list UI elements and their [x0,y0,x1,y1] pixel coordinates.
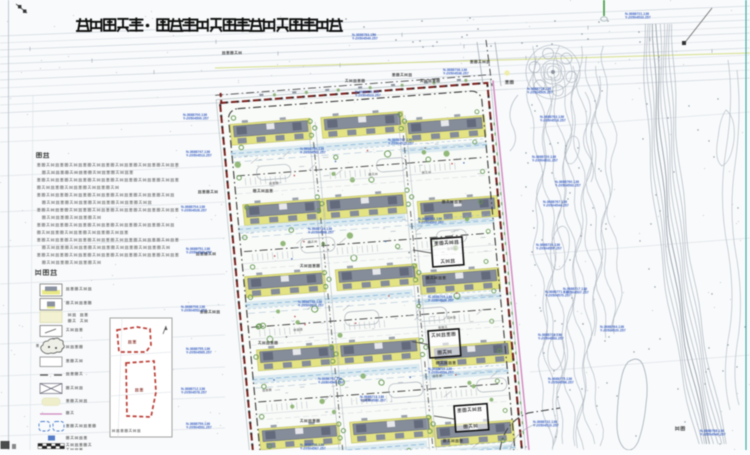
svg-text:Y-20504557.257: Y-20504557.257 [536,247,562,251]
svg-text:Y-20504518.257: Y-20504518.257 [540,119,566,123]
svg-text:Y-20504578.257: Y-20504578.257 [181,391,207,395]
svg-text:Y-20504565.257: Y-20504565.257 [186,351,212,355]
svg-text:Y-20504533.257: Y-20504533.257 [625,16,651,20]
svg-text:Y-20504593.257: Y-20504593.257 [555,184,581,188]
svg-text:Y-20504552.257: Y-20504552.257 [181,309,207,313]
svg-text:Y-20504502.257: Y-20504502.257 [418,221,444,225]
svg-text:Y-20504526.257: Y-20504526.257 [181,209,207,213]
svg-text:Y-20504591.257: Y-20504591.257 [186,426,212,430]
svg-text:Y-20504546.257: Y-20504546.257 [700,433,726,437]
svg-text:Y-20504500.257: Y-20504500.257 [183,117,209,121]
svg-text:Y-20504562.257: Y-20504562.257 [300,151,326,155]
svg-text:Y-20504583.257: Y-20504583.257 [538,337,564,341]
svg-text:Y-20504544.257: Y-20504544.257 [543,204,569,208]
svg-text:Y-20504539.257: Y-20504539.257 [186,251,212,255]
svg-text:Y-20504588.257: Y-20504588.257 [308,231,334,235]
svg-text:Y-20504580.257: Y-20504580.257 [360,399,386,403]
svg-text:Y-20504520.257: Y-20504520.257 [600,329,626,333]
svg-text:Y-20504513.257: Y-20504513.257 [186,154,212,158]
svg-text:Y-20504549.257: Y-20504549.257 [352,37,378,41]
svg-text:Y-20504567.257: Y-20504567.257 [300,447,326,450]
svg-text:Y-20504531.257: Y-20504531.257 [532,159,558,163]
svg-text:Y-20504505.257: Y-20504505.257 [527,91,553,95]
svg-text:Y-20504541.257: Y-20504541.257 [318,381,344,385]
svg-text:Y-20504596.257: Y-20504596.257 [548,381,574,385]
svg-text:Y-20504554.257: Y-20504554.257 [428,371,454,375]
svg-text:Y-20504510.257: Y-20504510.257 [533,424,559,428]
svg-text:Y-20504515.257: Y-20504515.257 [298,304,324,308]
svg-text:Y-20504528.257: Y-20504528.257 [428,299,454,303]
svg-text:Y-20504507.257: Y-20504507.257 [563,291,589,295]
svg-text:Y-20504575.257: Y-20504575.257 [388,142,414,146]
svg-text:Y-20504536.257: Y-20504536.257 [443,72,469,76]
svg-text:Y-20504523.257: Y-20504523.257 [355,94,381,98]
